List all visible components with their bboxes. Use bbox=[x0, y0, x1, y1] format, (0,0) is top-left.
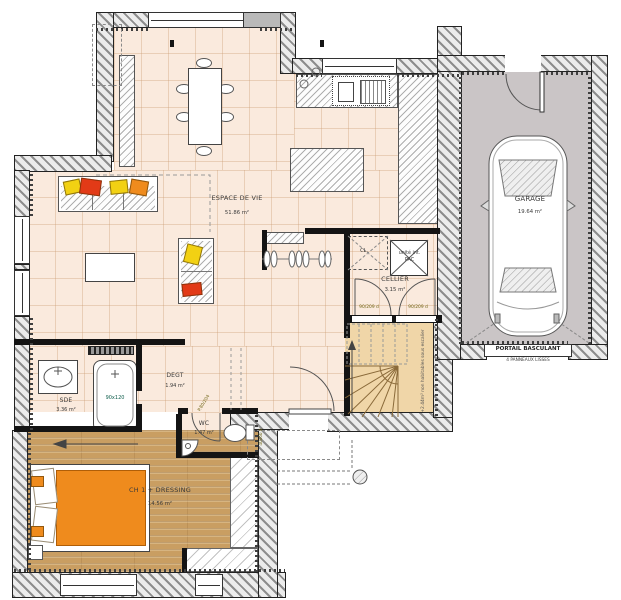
wall bbox=[12, 572, 286, 598]
partition-wall bbox=[14, 426, 142, 432]
bed-pillow bbox=[31, 506, 58, 544]
cushion-yellow bbox=[109, 179, 128, 195]
dining-table bbox=[188, 68, 222, 145]
insulation bbox=[28, 430, 31, 570]
insulation bbox=[459, 74, 462, 344]
room-label-wc: WC bbox=[186, 421, 222, 428]
wall-marker bbox=[170, 40, 174, 47]
cushion-red bbox=[181, 282, 202, 297]
wc-window-size-label: 40x60 d bbox=[259, 424, 264, 450]
door-size-label: 90/209 d bbox=[399, 305, 437, 310]
kitchen-counter-right bbox=[398, 74, 438, 224]
kitchen-island bbox=[290, 148, 364, 192]
kitchen-sink bbox=[338, 82, 354, 102]
partition-wall bbox=[14, 339, 185, 345]
partition-wall bbox=[136, 404, 142, 426]
cushion-red bbox=[79, 178, 102, 197]
shower-size-label: 90x120 bbox=[95, 396, 135, 402]
towel-radiator bbox=[88, 346, 134, 355]
vanity bbox=[38, 360, 78, 394]
closet-label: CL. bbox=[354, 249, 374, 255]
insulation bbox=[435, 318, 438, 416]
window bbox=[14, 270, 30, 316]
partition-wall bbox=[262, 230, 267, 270]
room-label-ch1: CH 1 + DRESSING bbox=[105, 487, 215, 494]
insulation bbox=[541, 72, 591, 75]
room-area-degt: 1.94 m² bbox=[152, 384, 198, 390]
room-area-wc: 1.47 m² bbox=[186, 431, 222, 437]
cushion-orange bbox=[129, 179, 149, 197]
insulation bbox=[30, 316, 33, 430]
window-kitchen bbox=[322, 58, 397, 74]
window-dressing bbox=[195, 574, 223, 596]
floor-plan: ESPACE DE VIE 51.86 m² GARAGE 19.64 m² C… bbox=[0, 0, 621, 600]
pac-label-line1: unité int. bbox=[392, 251, 427, 257]
partition-wall bbox=[222, 408, 258, 414]
room-area-ch1: 14.56 m² bbox=[105, 501, 215, 507]
room-area-sde: 3.36 m² bbox=[46, 408, 86, 414]
insulation bbox=[14, 569, 285, 572]
roof-projection-dashed bbox=[92, 24, 122, 86]
chair bbox=[196, 58, 212, 68]
window-bedroom bbox=[60, 574, 137, 596]
pac-label-line2: PAC bbox=[392, 258, 427, 264]
insulation bbox=[588, 74, 591, 344]
chair bbox=[196, 146, 212, 156]
wall bbox=[14, 316, 30, 430]
bed-duvet bbox=[56, 470, 146, 546]
partition-wall bbox=[136, 345, 142, 391]
insulation bbox=[296, 74, 322, 77]
gate-sublabel: 4 PANNEAUX LISSES bbox=[484, 359, 572, 364]
insulation bbox=[397, 74, 460, 77]
coffee-table bbox=[85, 253, 135, 282]
wall bbox=[568, 344, 608, 360]
window-fixed-pane bbox=[243, 12, 281, 28]
door-opening bbox=[352, 316, 392, 322]
wall-garage-right bbox=[591, 55, 608, 360]
wall bbox=[460, 344, 487, 360]
dish-rack bbox=[360, 80, 386, 104]
room-area-garage: 19.64 m² bbox=[495, 209, 565, 215]
stairs-note: +2.44m² non habitables sous escalier bbox=[421, 329, 426, 413]
insulation bbox=[260, 28, 294, 31]
partition-wall bbox=[305, 228, 440, 234]
coat-shelf bbox=[262, 232, 304, 244]
room-label-degt: DEGT bbox=[152, 373, 198, 380]
partition-wall bbox=[344, 322, 350, 338]
room-label-garage: GARAGE bbox=[495, 195, 565, 203]
insulation bbox=[30, 172, 33, 216]
door-size-label: 90/209 d bbox=[350, 305, 388, 310]
gate-label: PORTAIL BASCULANT bbox=[484, 346, 572, 352]
insulation bbox=[462, 72, 505, 75]
cushion-orange bbox=[31, 526, 44, 537]
dressing-wardrobe-right bbox=[230, 456, 258, 548]
room-label-cellier: CELLIER bbox=[365, 276, 425, 283]
room-label-espace-de-vie: ESPACE DE VIE bbox=[197, 195, 277, 202]
wall-marker bbox=[320, 40, 324, 47]
front-door-opening bbox=[289, 412, 328, 430]
room-area-espace-de-vie: 51.86 m² bbox=[197, 210, 277, 216]
cushion-orange bbox=[31, 476, 44, 487]
wall bbox=[14, 170, 30, 218]
garage-door-opening bbox=[505, 55, 541, 72]
room-label-sde: SDE bbox=[46, 398, 86, 405]
door-opening bbox=[396, 316, 436, 322]
room-area-cellier: 3.15 m² bbox=[365, 287, 425, 293]
partition-wall bbox=[344, 352, 350, 416]
window bbox=[14, 216, 30, 264]
partition-wall bbox=[176, 452, 258, 458]
